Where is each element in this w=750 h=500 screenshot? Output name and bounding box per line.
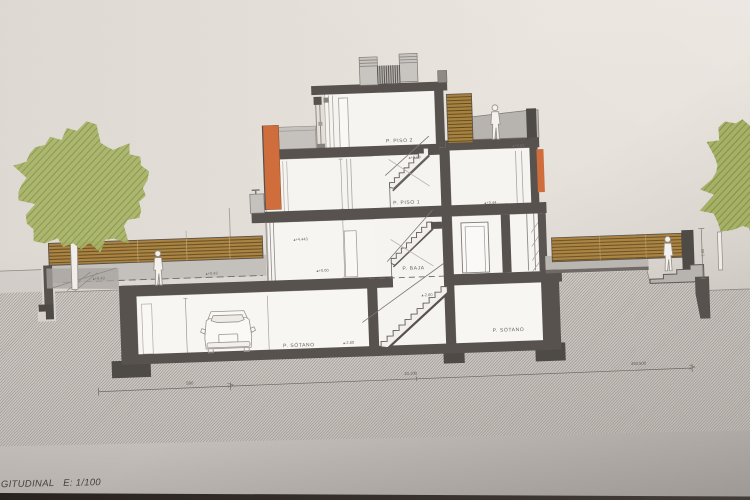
svg-text:10.100: 10.100 [404, 371, 418, 376]
svg-text:▴+4.443: ▴+4.443 [293, 236, 308, 242]
svg-text:494.500: 494.500 [631, 361, 647, 367]
svg-text:P. BAJA: P. BAJA [402, 265, 424, 272]
svg-text:P. SÓTANO: P. SÓTANO [283, 341, 315, 349]
svg-text:GITUDINAL E: 1/100: GITUDINAL E: 1/100 [1, 477, 102, 490]
svg-text:P. SÓTANO: P. SÓTANO [493, 326, 525, 334]
svg-text:500: 500 [186, 380, 194, 385]
svg-text:P. PISO 2: P. PISO 2 [386, 138, 413, 145]
svg-text:▴+0.00: ▴+0.00 [316, 268, 329, 273]
svg-text:▴-2.80: ▴-2.80 [343, 340, 355, 345]
svg-text:▴+0.43: ▴+0.43 [205, 270, 218, 275]
svg-text:P. PISO 1: P. PISO 1 [393, 199, 420, 206]
svg-text:▴+3.44: ▴+3.44 [484, 200, 497, 205]
svg-text:▴+6.88: ▴+6.88 [512, 143, 525, 148]
svg-text:▴+6.88: ▴+6.88 [409, 154, 422, 159]
svg-text:▴-2.80: ▴-2.80 [421, 292, 433, 297]
svg-text:2.80: 2.80 [700, 248, 705, 257]
svg-text:▴+0.43: ▴+0.43 [93, 275, 106, 280]
